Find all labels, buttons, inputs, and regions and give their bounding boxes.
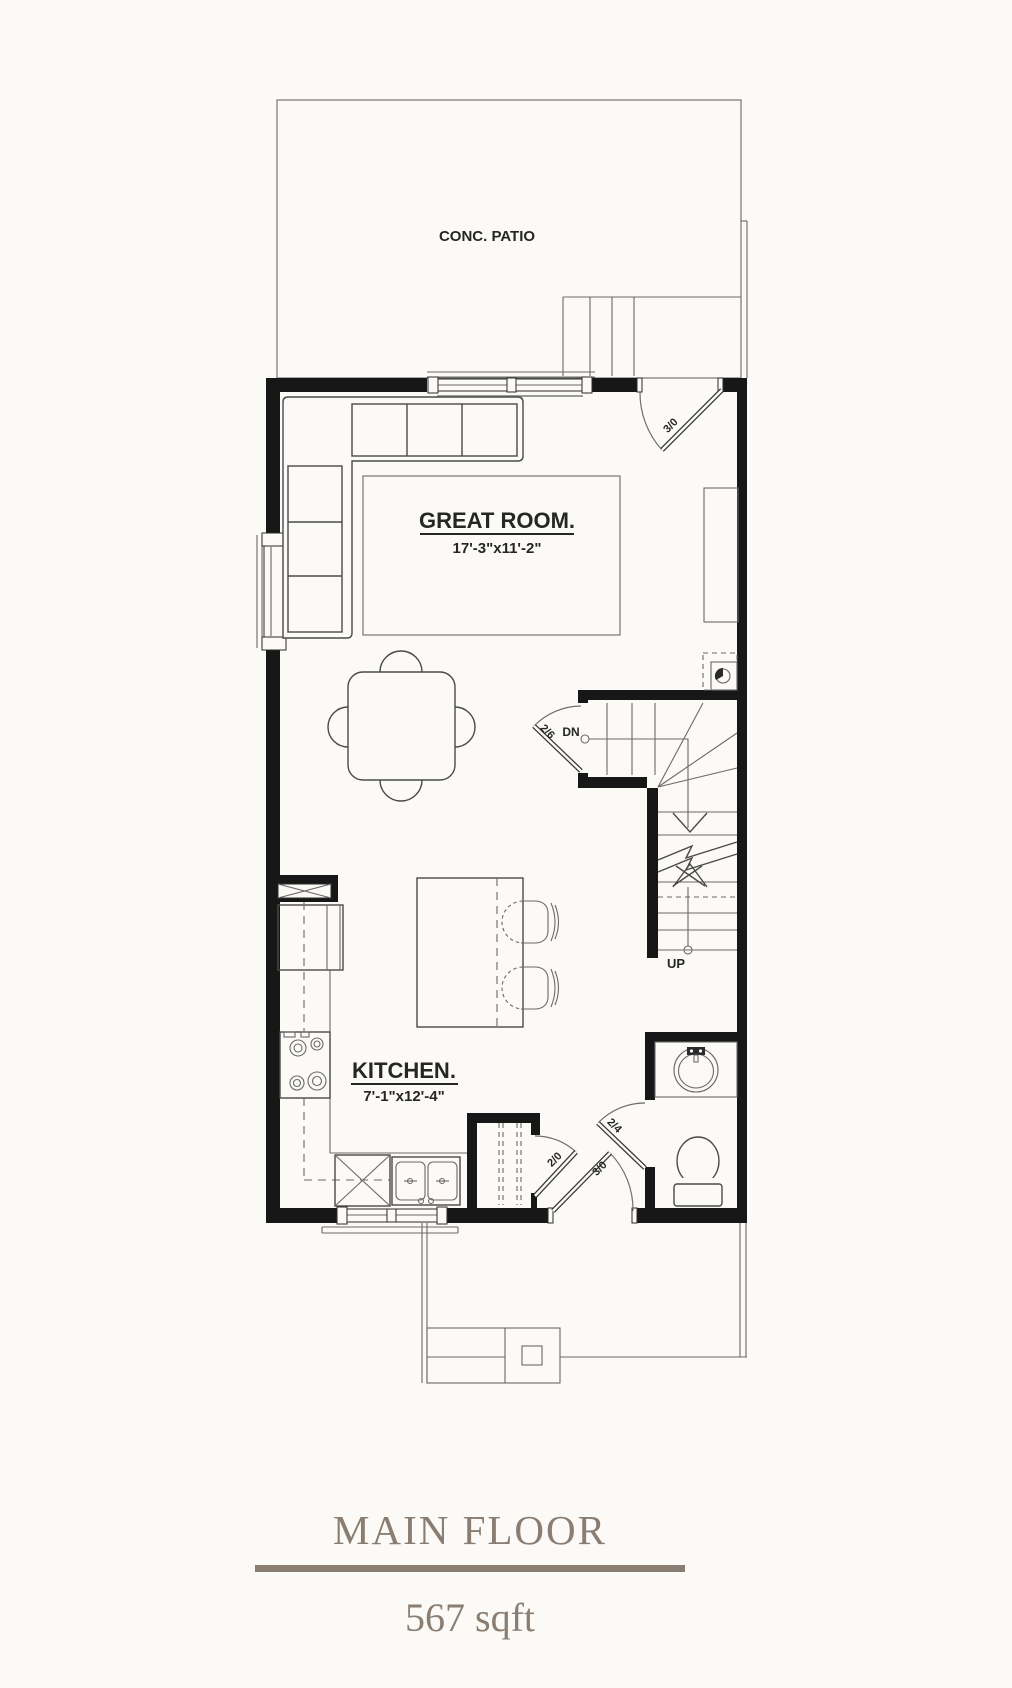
kitchen-label: KITCHEN. — [352, 1058, 456, 1083]
great-room-window-top — [427, 372, 595, 396]
floor-plan-page: CONC. PATIO GREAT ROOM. 17'-3"x11'-2" KI… — [0, 0, 1012, 1688]
fireplace-outlet — [703, 653, 737, 690]
kitchen-sink — [392, 1157, 460, 1205]
stairs — [581, 703, 737, 954]
kitchen-dims: 7'-1"x12'-4" — [363, 1088, 444, 1105]
great-room-window-left — [257, 533, 286, 650]
title-block: MAIN FLOOR 567 sqft — [0, 1510, 940, 1638]
patio-label: CONC. PATIO — [439, 228, 535, 245]
stair-up-label: UP — [667, 956, 685, 971]
great-room-label: GREAT ROOM. — [419, 508, 575, 533]
page-title: MAIN FLOOR — [0, 1510, 940, 1551]
dining-set — [328, 651, 475, 801]
toilet — [674, 1137, 722, 1206]
kitchen-window — [322, 1207, 458, 1233]
great-room-dims: 17'-3"x11'-2" — [453, 540, 542, 557]
media-unit — [704, 488, 738, 622]
back-door — [640, 390, 722, 450]
refrigerator — [278, 905, 343, 970]
kitchen-island — [417, 878, 523, 1027]
dining-chair — [328, 707, 348, 747]
dining-table — [348, 672, 455, 780]
porch-outline — [422, 1223, 747, 1383]
dining-chair — [455, 707, 475, 747]
bathroom-vanity — [655, 1042, 737, 1097]
dining-chair — [380, 780, 422, 801]
pantry-shelves — [499, 1123, 521, 1205]
dining-chair — [380, 651, 422, 672]
porch-steps — [427, 1328, 560, 1383]
title-divider — [255, 1565, 685, 1572]
entry-door-size-label: 3/0 — [590, 1159, 609, 1178]
floor-area: 567 sqft — [0, 1598, 940, 1638]
floor-plan-drawing: CONC. PATIO GREAT ROOM. 17'-3"x11'-2" KI… — [0, 0, 1012, 1688]
patio-steps — [563, 297, 741, 376]
stair-door-size-label: 2/6 — [537, 722, 556, 741]
stair-down-label: DN — [562, 725, 579, 739]
range-stove — [280, 1032, 330, 1098]
